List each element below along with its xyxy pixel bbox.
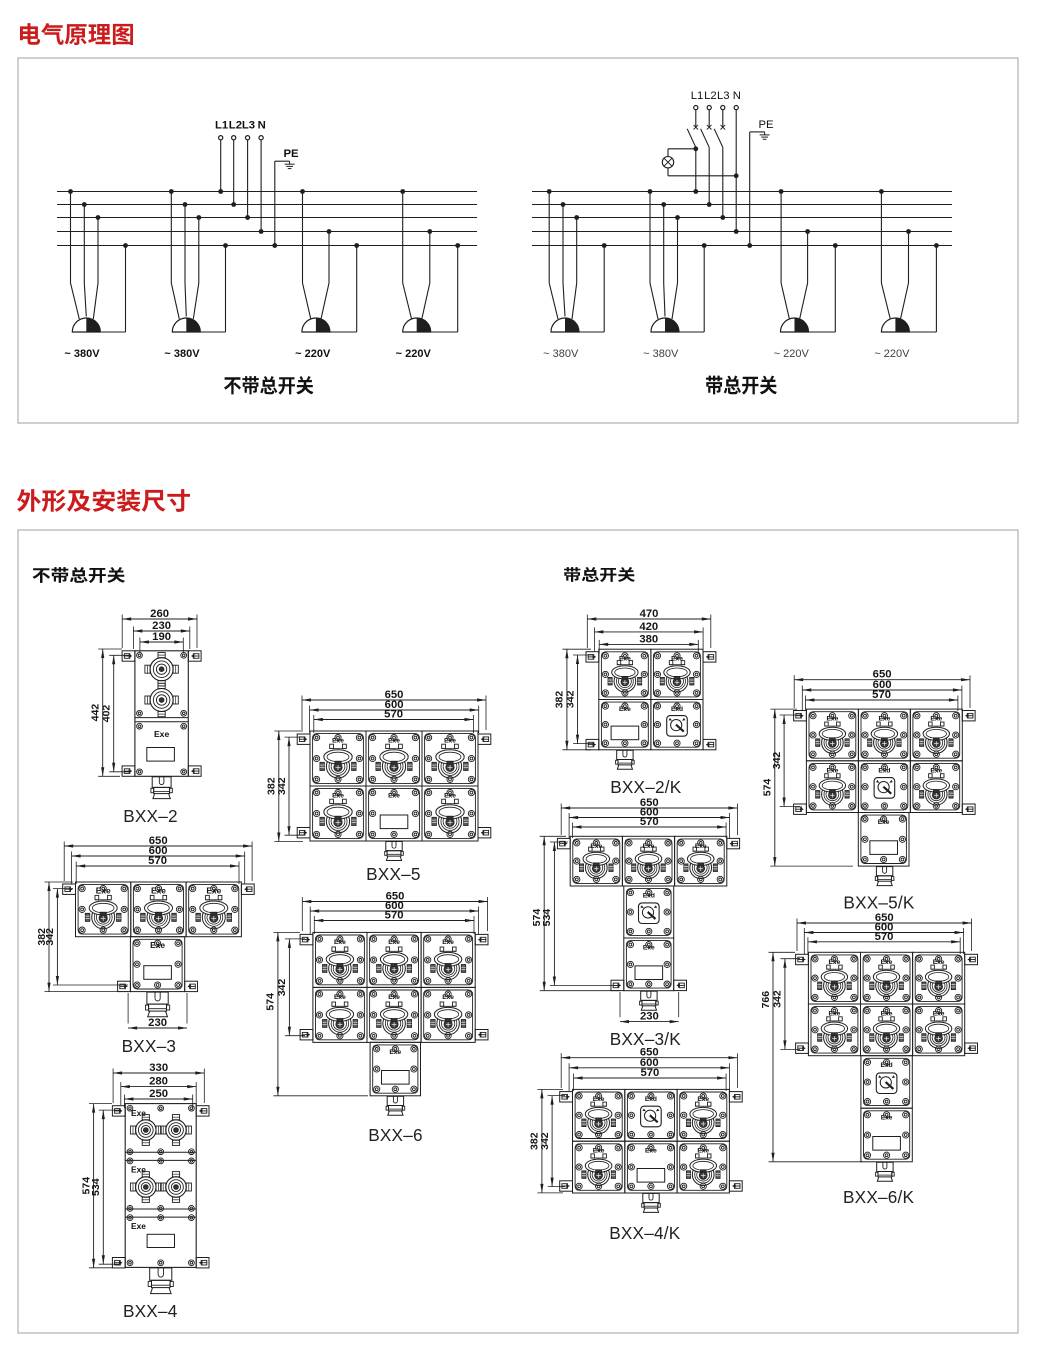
svg-text:BXX–4/K: BXX–4/K [609, 1223, 680, 1243]
svg-text:570: 570 [872, 689, 891, 701]
svg-text:N: N [733, 90, 741, 102]
svg-text:Exe: Exe [444, 793, 456, 800]
svg-text:190: 190 [152, 631, 171, 643]
svg-text:~ 220V: ~ 220V [774, 348, 810, 360]
svg-text:Exe: Exe [643, 945, 655, 952]
svg-text:Exe: Exe [131, 1108, 146, 1118]
svg-text:574: 574 [762, 779, 774, 797]
svg-text:342: 342 [276, 979, 288, 997]
svg-text:342: 342 [276, 777, 288, 795]
svg-text:Exe: Exe [151, 886, 166, 896]
svg-text:Exe: Exe [131, 1164, 146, 1174]
svg-text:Exe: Exe [334, 994, 346, 1001]
svg-text:L2: L2 [229, 120, 242, 132]
svg-text:~ 380V: ~ 380V [64, 348, 100, 360]
svg-text:BXX–2/K: BXX–2/K [610, 777, 681, 797]
svg-text:L3: L3 [717, 90, 730, 102]
svg-text:250: 250 [149, 1088, 168, 1100]
svg-text:Exe: Exe [881, 1115, 893, 1122]
svg-text:~ 220V: ~ 220V [295, 348, 331, 360]
svg-text:570: 570 [640, 1067, 659, 1079]
svg-text:420: 420 [639, 621, 658, 633]
svg-text:766: 766 [760, 991, 772, 1009]
svg-text:Exd: Exd [881, 1062, 893, 1069]
svg-text:Exe: Exe [388, 793, 400, 800]
svg-text:402: 402 [101, 705, 113, 723]
svg-text:BXX–6: BXX–6 [368, 1125, 423, 1145]
svg-text:534: 534 [90, 1178, 102, 1196]
svg-text:Exe: Exe [96, 886, 111, 896]
svg-text:570: 570 [875, 931, 894, 943]
svg-text:280: 280 [149, 1076, 168, 1088]
svg-text:Exe: Exe [131, 1221, 146, 1231]
svg-text:~ 380V: ~ 380V [543, 348, 579, 360]
svg-text:~ 220V: ~ 220V [874, 348, 910, 360]
svg-text:BXX–2: BXX–2 [123, 806, 178, 826]
svg-text:Exd: Exd [878, 767, 890, 774]
svg-text:~ 220V: ~ 220V [396, 348, 432, 360]
svg-text:570: 570 [384, 709, 403, 721]
svg-text:230: 230 [640, 1011, 659, 1023]
svg-text:534: 534 [541, 909, 553, 927]
svg-text:342: 342 [539, 1132, 551, 1150]
svg-text:260: 260 [150, 608, 169, 620]
svg-text:BXX–6/K: BXX–6/K [843, 1187, 914, 1207]
svg-text:574: 574 [265, 993, 277, 1011]
svg-text:Exe: Exe [878, 819, 890, 826]
svg-text:Exe: Exe [388, 738, 400, 745]
svg-text:Exe: Exe [332, 738, 344, 745]
svg-text:342: 342 [564, 690, 576, 708]
svg-text:Exe: Exe [442, 994, 454, 1001]
svg-text:342: 342 [771, 752, 783, 770]
svg-text:Exd: Exd [645, 1096, 657, 1103]
svg-text:380: 380 [639, 633, 658, 645]
svg-text:Exe: Exe [444, 738, 456, 745]
svg-text:570: 570 [385, 910, 404, 922]
svg-text:330: 330 [149, 1062, 168, 1074]
svg-text:Exe: Exe [334, 939, 346, 946]
svg-text:N: N [258, 120, 266, 132]
svg-text:230: 230 [148, 1017, 167, 1029]
svg-text:342: 342 [772, 990, 784, 1008]
svg-text:Exe: Exe [388, 994, 400, 1001]
svg-text:~ 380V: ~ 380V [164, 348, 200, 360]
svg-text:BXX–5/K: BXX–5/K [843, 893, 914, 913]
svg-text:Exe: Exe [154, 729, 170, 739]
svg-text:342: 342 [44, 928, 56, 946]
svg-text:Exe: Exe [332, 793, 344, 800]
svg-text:Exe: Exe [645, 1148, 657, 1155]
svg-text:Exe: Exe [150, 940, 165, 950]
svg-text:Exe: Exe [206, 886, 221, 896]
svg-text:~ 380V: ~ 380V [643, 348, 679, 360]
svg-text:Exe: Exe [619, 706, 631, 713]
svg-text:L2: L2 [704, 90, 717, 102]
svg-text:PE: PE [758, 119, 774, 131]
svg-text:Exe: Exe [388, 939, 400, 946]
svg-text:L1: L1 [691, 90, 704, 102]
svg-text:470: 470 [640, 608, 659, 620]
svg-text:Exe: Exe [442, 939, 454, 946]
svg-text:L3: L3 [242, 120, 255, 132]
svg-text:L1: L1 [215, 120, 228, 132]
svg-text:Exd: Exd [671, 706, 683, 713]
svg-text:Exd: Exd [643, 893, 655, 900]
svg-text:BXX–3: BXX–3 [122, 1036, 177, 1056]
svg-text:570: 570 [640, 816, 659, 828]
svg-text:Exe: Exe [389, 1049, 401, 1056]
svg-text:BXX–5: BXX–5 [366, 864, 421, 884]
svg-text:BXX–4: BXX–4 [123, 1301, 178, 1321]
svg-text:570: 570 [148, 855, 167, 867]
svg-text:PE: PE [283, 148, 299, 160]
